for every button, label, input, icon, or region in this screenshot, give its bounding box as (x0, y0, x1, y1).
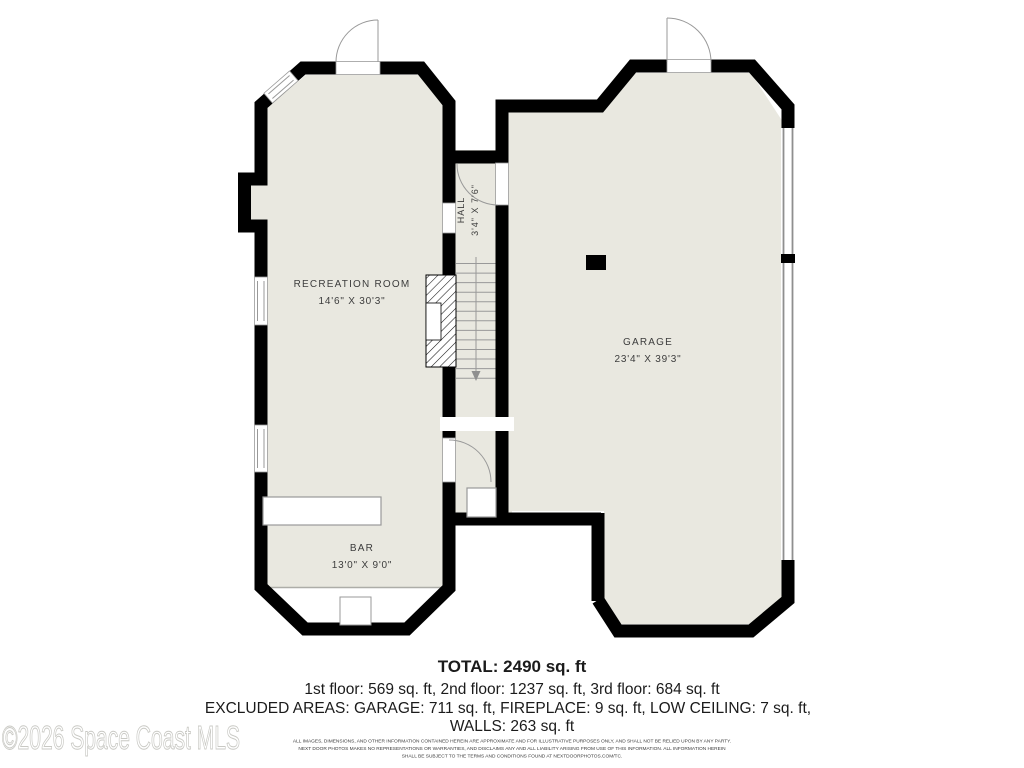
window-left-lower (255, 425, 268, 472)
door-garage-top (667, 18, 711, 73)
recreation-room-label: RECREATION ROOM (294, 279, 411, 290)
total-area-text: TOTAL: 2490 sq. ft (438, 657, 587, 676)
mls-watermark: ©2026 Space Coast MLS (2, 719, 240, 756)
excluded-walls-text: WALLS: 263 sq. ft (450, 718, 575, 735)
hall-label: HALL (456, 197, 466, 224)
hall-dims: 3'4" X 7'6" (470, 184, 480, 236)
bottom-bay-element (340, 597, 371, 625)
disclaimer: ALL IMAGES, DIMENSIONS, AND OTHER INFORM… (293, 739, 731, 760)
excluded-areas-text: EXCLUDED AREAS: GARAGE: 711 sq. ft, FIRE… (205, 700, 811, 717)
floorplan-canvas: RECREATION ROOM 14'6" X 30'3" BAR 13'0" … (0, 0, 1024, 768)
window-left-upper (255, 277, 268, 325)
garage-floor (508, 73, 783, 624)
window-garage-right (781, 128, 795, 560)
area-summary: TOTAL: 2490 sq. ft 1st floor: 569 sq. ft… (205, 657, 811, 735)
garage-label: GARAGE (623, 337, 673, 348)
floor-areas-text: 1st floor: 569 sq. ft, 2nd floor: 1237 s… (304, 681, 720, 698)
bar-dims: 13'0" X 9'0" (332, 560, 393, 571)
garage-post (586, 255, 606, 270)
bar-label: BAR (350, 543, 374, 554)
disclaimer-line-3: SHALL BE SUBJECT TO THE TERMS AND CONDIT… (402, 754, 623, 760)
understair-opening (440, 417, 514, 431)
fireplace-firebox (426, 303, 441, 340)
disclaimer-line-2: NEXT DOOR PHOTOS MAKES NO REPRESENTATION… (298, 746, 726, 752)
floor-areas (249, 73, 783, 624)
garage-dims: 23'4" X 39'3" (615, 354, 682, 365)
disclaimer-line-1: ALL IMAGES, DIMENSIONS, AND OTHER INFORM… (293, 739, 731, 745)
recreation-room-dims: 14'6" X 30'3" (319, 296, 386, 307)
landing-closet (467, 488, 496, 517)
door-recreation-top (336, 20, 380, 75)
bar-counter (263, 497, 381, 525)
garage-window-mullion (781, 254, 795, 263)
fireplace (426, 275, 456, 367)
opening-hall-recreation (443, 203, 456, 233)
